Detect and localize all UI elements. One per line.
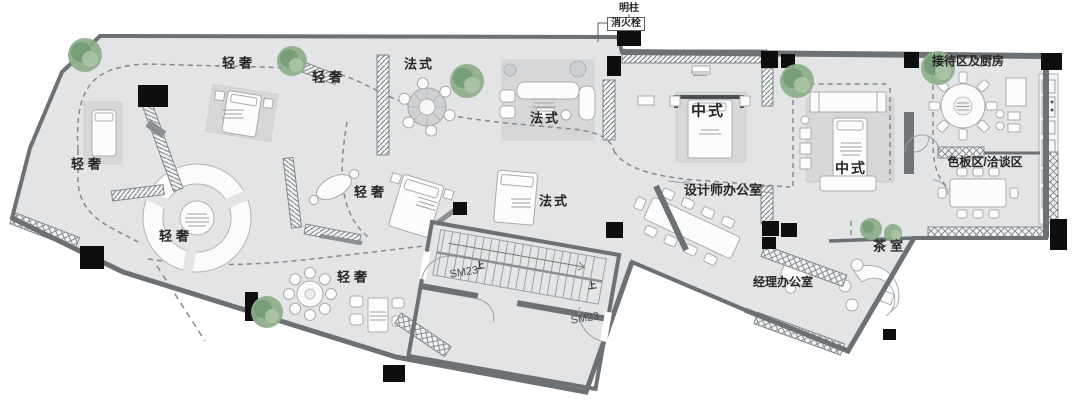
tree [68,38,102,72]
tree [884,224,902,242]
tree [277,46,307,76]
tree [921,51,955,85]
tree [251,296,283,328]
round-dining-bottom [284,268,337,321]
floor-plan-drawing [0,0,1080,412]
tree [780,64,814,98]
tree [450,64,484,98]
floor-plan-page: 明柱消火栓轻奢轻奢轻奢轻奢轻奢轻奢法式法式法式中式中式设计师办公室经理办公室茶室… [0,0,1080,412]
tree [860,218,882,240]
